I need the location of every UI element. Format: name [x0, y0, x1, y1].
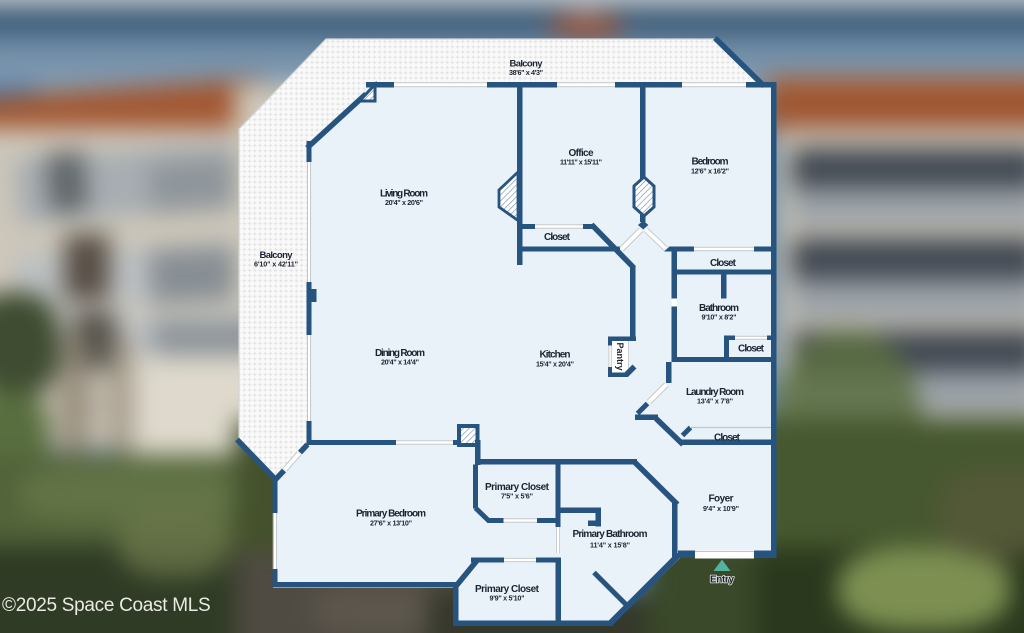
svg-text:20'4" x 14'4": 20'4" x 14'4" [381, 358, 419, 367]
svg-text:27'6" x 13'10": 27'6" x 13'10" [370, 519, 412, 528]
svg-text:Primary Bathroom: Primary Bathroom [573, 529, 648, 540]
svg-text:Closet: Closet [544, 232, 571, 243]
svg-text:Closet: Closet [714, 433, 741, 444]
svg-text:12'6" x 16'2": 12'6" x 16'2" [691, 167, 729, 176]
svg-text:38'6" x 4'3": 38'6" x 4'3" [509, 68, 543, 77]
svg-text:7'5" x 5'6": 7'5" x 5'6" [501, 492, 533, 501]
svg-text:11'11" x 15'11": 11'11" x 15'11" [560, 158, 602, 167]
svg-text:9'10" x 8'2": 9'10" x 8'2" [702, 313, 737, 322]
svg-text:6'10" x 42'11": 6'10" x 42'11" [254, 260, 298, 269]
svg-text:Foyer: Foyer [709, 494, 734, 505]
svg-text:11'4" x 15'8": 11'4" x 15'8" [590, 541, 630, 550]
svg-text:Closet: Closet [738, 344, 765, 355]
svg-text:Entry: Entry [710, 575, 734, 586]
svg-text:9'9" x 5'10": 9'9" x 5'10" [490, 594, 525, 603]
svg-text:Pantry: Pantry [615, 343, 625, 371]
svg-text:9'4" x 10'9": 9'4" x 10'9" [703, 504, 739, 513]
svg-text:13'4" x 7'8": 13'4" x 7'8" [697, 397, 733, 406]
svg-text:20'4" x 20'6": 20'4" x 20'6" [385, 198, 423, 207]
svg-text:Closet: Closet [710, 258, 737, 269]
svg-text:15'4" x 20'4": 15'4" x 20'4" [536, 360, 574, 369]
